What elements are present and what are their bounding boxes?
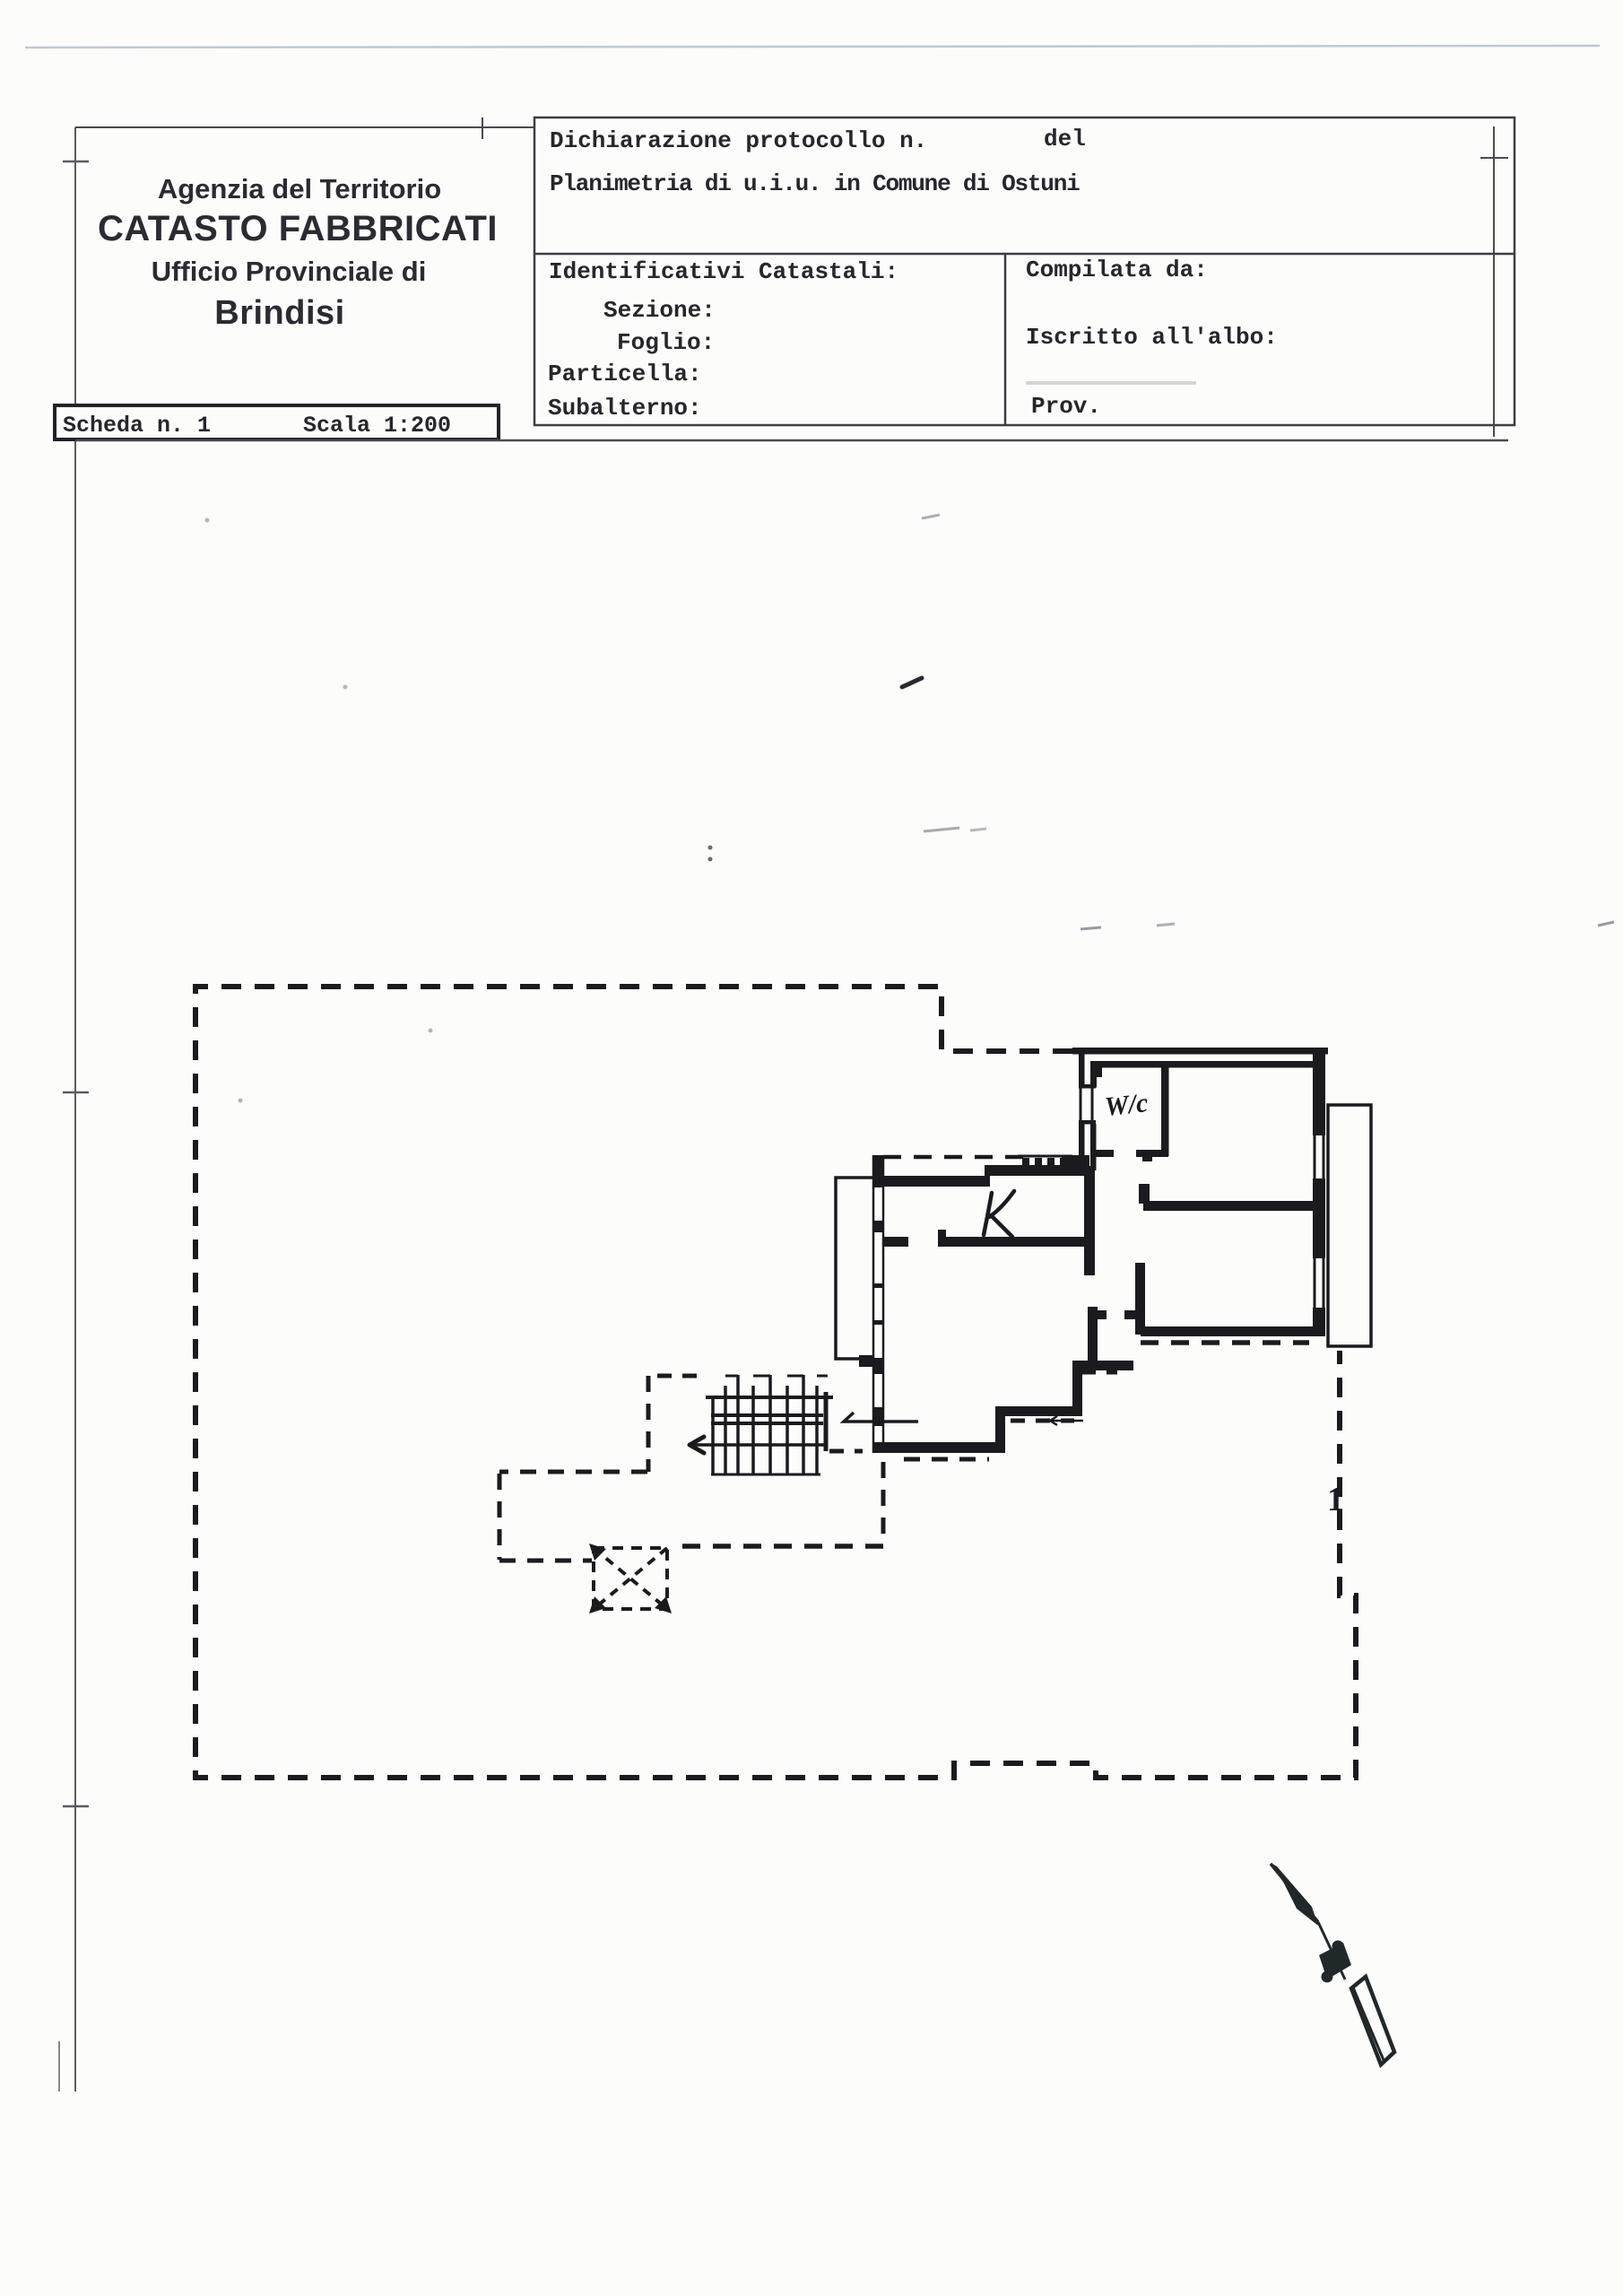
svg-text:Iscritto all'albo:: Iscritto all'albo: — [1026, 324, 1278, 351]
svg-text:Subalterno:: Subalterno: — [548, 395, 702, 422]
svg-text:Foglio:: Foglio: — [617, 329, 715, 356]
svg-text:W/c: W/c — [1103, 1088, 1150, 1122]
svg-text:Prov.: Prov. — [1031, 393, 1101, 420]
svg-text:Compilata da:: Compilata da: — [1026, 257, 1208, 283]
svg-text:Identificativi Catastali:: Identificativi Catastali: — [549, 258, 898, 285]
svg-text:Planimetria di u.i.u. in Comun: Planimetria di u.i.u. in Comune di Ostun… — [550, 170, 1080, 197]
svg-text:CATASTO FABBRICATI: CATASTO FABBRICATI — [98, 209, 498, 248]
svg-text:Brindisi: Brindisi — [214, 294, 344, 332]
svg-text:Scheda n. 1: Scheda n. 1 — [63, 413, 211, 439]
svg-text:Agenzia del Territorio: Agenzia del Territorio — [158, 173, 441, 204]
svg-text:Particella:: Particella: — [548, 361, 702, 387]
svg-text:del: del — [1044, 126, 1086, 152]
svg-text:Scala 1:200: Scala 1:200 — [303, 413, 451, 439]
svg-text:Dichiarazione protocollo n.: Dichiarazione protocollo n. — [550, 127, 927, 154]
svg-text:Ufficio Provinciale di: Ufficio Provinciale di — [152, 256, 427, 287]
svg-text:1: 1 — [1327, 1481, 1344, 1518]
svg-text:Sezione:: Sezione: — [603, 297, 716, 324]
